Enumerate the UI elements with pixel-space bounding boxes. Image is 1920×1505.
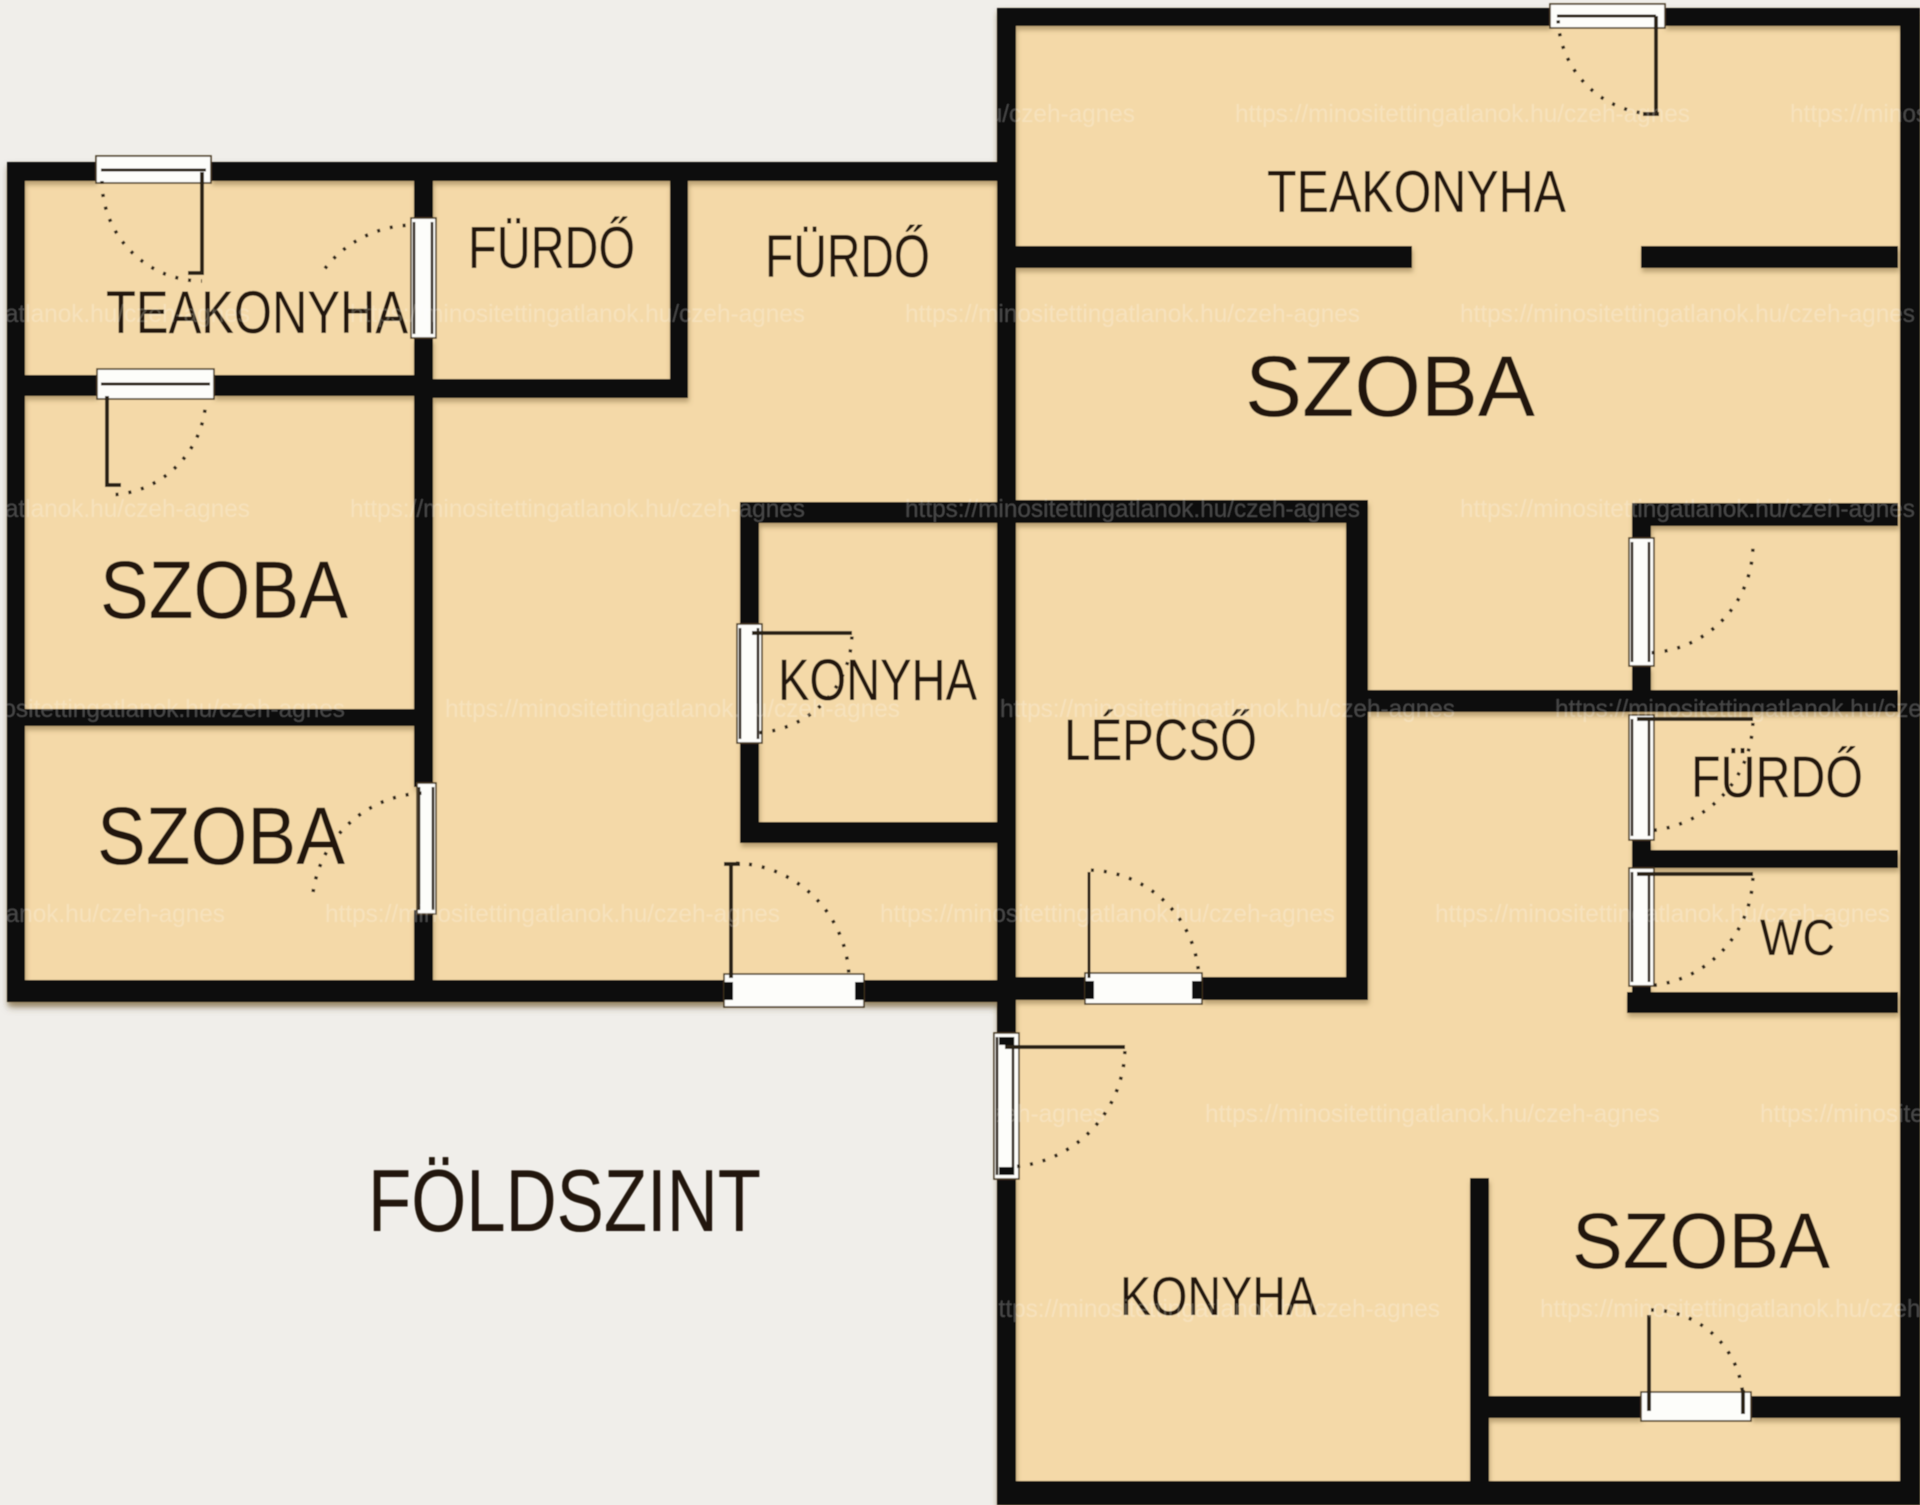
- svg-text:SZOBA: SZOBA: [1245, 339, 1536, 435]
- svg-text:https://minositettingatlanok.h: https://minositettingatlanok.hu/czeh-agn…: [1235, 100, 1690, 128]
- svg-text:https://minositettingatlanok.h: https://minositettingatlanok.hu/czeh-agn…: [1205, 1100, 1660, 1128]
- svg-text:https://minositettingatlanok.h: https://minositettingatlanok.hu/czeh-agn…: [880, 900, 1335, 928]
- svg-text:FÜRDŐ: FÜRDŐ: [468, 215, 635, 281]
- svg-text:FÜRDŐ: FÜRDŐ: [765, 223, 930, 290]
- svg-text:https://minositettingatlanok.h: https://minositettingatlanok.hu/czeh-agn…: [445, 695, 900, 723]
- svg-text:https://minositettingatlanok.h: https://minositettingatlanok.hu/czeh-agn…: [0, 695, 345, 723]
- svg-text:https://minositettingatlanok.h: https://minositettingatlanok.hu/czeh-agn…: [1540, 1295, 1920, 1323]
- svg-text:https://minositettingatlanok.h: https://minositettingatlanok.hu/czeh-agn…: [1000, 695, 1455, 723]
- svg-text:https://minositettingatlanok.h: https://minositettingatlanok.hu/czeh-agn…: [1460, 300, 1915, 328]
- svg-text:https://minositettingatlanok.h: https://minositettingatlanok.hu/czeh-agn…: [0, 900, 225, 928]
- svg-text:https://minositettingatlanok.h: https://minositettingatlanok.hu/czeh-agn…: [1790, 100, 1920, 128]
- svg-text:FÖLDSZINT: FÖLDSZINT: [368, 1151, 761, 1250]
- svg-text:https://minositettingatlanok.h: https://minositettingatlanok.hu/czeh-agn…: [350, 495, 805, 523]
- svg-text:SZOBA: SZOBA: [1572, 1196, 1830, 1285]
- svg-text:https://minositettingatlanok.h: https://minositettingatlanok.hu/czeh-agn…: [325, 900, 780, 928]
- svg-text:https://minositettingatlanok.h: https://minositettingatlanok.hu/czeh-agn…: [905, 495, 1360, 523]
- svg-text:https://minositettingatlanok.h: https://minositettingatlanok.hu/czeh-agn…: [1555, 695, 1920, 723]
- svg-text:https://minositettingatlanok.h: https://minositettingatlanok.hu/czeh-agn…: [905, 300, 1360, 328]
- svg-text:https://minositettingatlanok.h: https://minositettingatlanok.hu/czeh-agn…: [0, 495, 250, 523]
- svg-text:SZOBA: SZOBA: [100, 545, 348, 636]
- svg-text:SZOBA: SZOBA: [97, 791, 345, 882]
- svg-text:https://minositettingatlanok.h: https://minositettingatlanok.hu/czeh-agn…: [0, 300, 250, 328]
- svg-text:https://minositettingatlanok.h: https://minositettingatlanok.hu/czeh-agn…: [1435, 900, 1890, 928]
- svg-text:TEAKONYHA: TEAKONYHA: [1267, 159, 1567, 225]
- svg-text:https://minositettingatlanok.h: https://minositettingatlanok.hu/czeh-agn…: [350, 300, 805, 328]
- svg-text:https://minositettingatlanok.h: https://minositettingatlanok.hu/czeh-agn…: [1760, 1100, 1920, 1128]
- svg-text:https://minositettingatlanok.h: https://minositettingatlanok.hu/czeh-agn…: [1460, 495, 1915, 523]
- svg-text:https://minositettingatlanok.h: https://minositettingatlanok.hu/czeh-agn…: [985, 1295, 1440, 1323]
- svg-text:FÜRDŐ: FÜRDŐ: [1691, 745, 1863, 810]
